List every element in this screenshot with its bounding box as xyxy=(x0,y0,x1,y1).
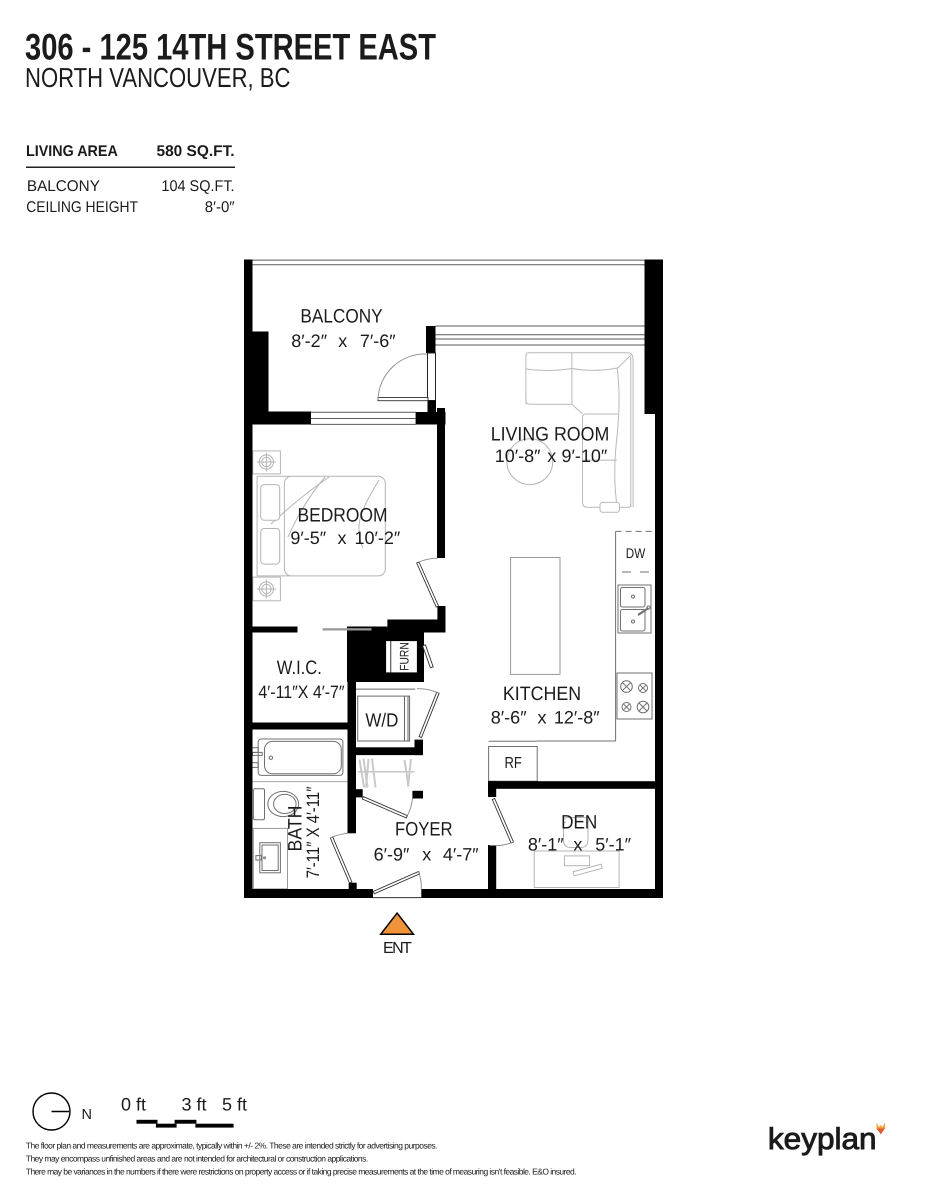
svg-text:8′-0″: 8′-0″ xyxy=(205,199,235,216)
svg-text:RF: RF xyxy=(505,755,522,772)
svg-text:580 SQ.FT.: 580 SQ.FT. xyxy=(157,143,235,160)
svg-text:FOYER: FOYER xyxy=(395,818,453,840)
svg-text:LIVING AREA: LIVING AREA xyxy=(26,143,118,160)
svg-text:DW: DW xyxy=(626,545,646,561)
svg-text:104 SQ.FT.: 104 SQ.FT. xyxy=(161,178,234,195)
svg-text:5 ft: 5 ft xyxy=(222,1095,247,1115)
svg-text:8′-1″: 8′-1″ xyxy=(528,834,564,854)
svg-text:5′-1″: 5′-1″ xyxy=(595,834,631,854)
svg-text:x: x xyxy=(338,528,347,548)
svg-text:4′-7″: 4′-7″ xyxy=(443,844,479,864)
svg-text:They may encompass unfinished: They may encompass unfinished areas and … xyxy=(26,1154,368,1164)
svg-text:W/D: W/D xyxy=(365,710,398,731)
svg-text:8′-6″: 8′-6″ xyxy=(491,708,527,728)
svg-text:There may be variances in the: There may be variances in the numbers if… xyxy=(26,1167,577,1177)
svg-text:7′-6″: 7′-6″ xyxy=(360,331,396,351)
svg-text:NORTH VANCOUVER, BC: NORTH VANCOUVER, BC xyxy=(25,62,291,93)
svg-text:LIVING ROOM: LIVING ROOM xyxy=(491,424,610,446)
svg-text:9′-10″: 9′-10″ xyxy=(562,446,608,466)
svg-text:ENT: ENT xyxy=(383,940,412,957)
svg-text:8′-2″: 8′-2″ xyxy=(291,331,327,351)
svg-text:0 ft: 0 ft xyxy=(121,1095,146,1115)
svg-text:BALCONY: BALCONY xyxy=(300,305,382,327)
svg-text:N: N xyxy=(82,1107,92,1123)
svg-text:10′-8″: 10′-8″ xyxy=(495,446,541,466)
svg-text:x: x xyxy=(422,844,431,864)
svg-text:12′-8″: 12′-8″ xyxy=(554,708,600,728)
svg-text:CEILING HEIGHT: CEILING HEIGHT xyxy=(26,199,138,216)
svg-text:7′-11″ X 4′-11″: 7′-11″ X 4′-11″ xyxy=(303,786,323,878)
svg-text:The floor plan and measurement: The floor plan and measurements are appr… xyxy=(26,1141,438,1151)
svg-text:FURN: FURN xyxy=(397,642,411,671)
svg-text:10′-2″: 10′-2″ xyxy=(355,528,401,548)
svg-text:3 ft: 3 ft xyxy=(181,1095,206,1115)
svg-text:x: x xyxy=(573,834,582,854)
svg-text:BALCONY: BALCONY xyxy=(27,178,100,195)
svg-text:6′-9″: 6′-9″ xyxy=(374,844,410,864)
svg-text:x: x xyxy=(338,331,347,351)
svg-text:BEDROOM: BEDROOM xyxy=(297,504,387,526)
svg-text:x: x xyxy=(538,708,547,728)
svg-text:x: x xyxy=(547,446,556,466)
svg-text:4′-11″X 4′-7″: 4′-11″X 4′-7″ xyxy=(258,682,345,702)
svg-text:KITCHEN: KITCHEN xyxy=(503,683,581,705)
svg-text:9′-5″: 9′-5″ xyxy=(290,528,326,548)
svg-text:keyplan: keyplan xyxy=(768,1123,877,1156)
svg-text:W.I.C.: W.I.C. xyxy=(277,657,322,679)
svg-text:DEN: DEN xyxy=(561,812,597,834)
